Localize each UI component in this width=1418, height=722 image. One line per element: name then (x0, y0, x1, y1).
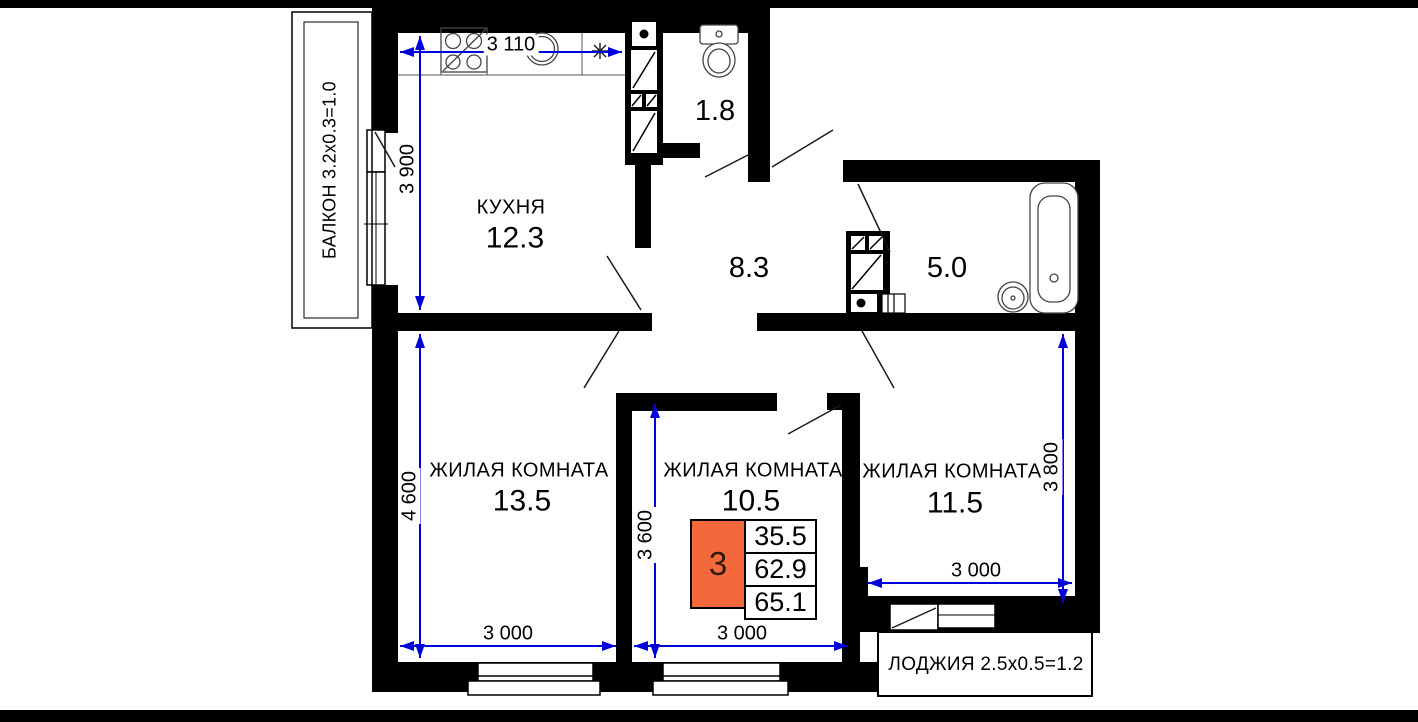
window-living1 (478, 663, 593, 681)
kitchen-label: КУХНЯ (477, 198, 546, 219)
living2-door-swing (788, 405, 841, 434)
apartment-rooms-number: 3 (690, 519, 746, 609)
floor-plan: КУХНЯ 12.3 1.8 8.3 5.0 ЖИЛАЯ КОМНАТА 13.… (0, 0, 1418, 722)
apartment-summary-box: 3 35.5 62.9 65.1 (690, 519, 819, 609)
dim-kitchen-width: 3 110 (484, 35, 539, 56)
living1-door-swing (584, 331, 619, 388)
living3-label: ЖИЛАЯ КОМНАТА (862, 462, 1041, 483)
dim-living1-width: 3 000 (480, 624, 536, 645)
vent-shaft-kitchen-icon (625, 8, 663, 165)
living3-area: 11.5 (927, 487, 983, 519)
living1-label: ЖИЛАЯ КОМНАТА (429, 461, 608, 482)
area-without-balcony-value: 62.9 (744, 552, 817, 587)
wc-area: 1.8 (695, 96, 735, 126)
dim-kitchen-depth: 3 900 (398, 141, 419, 197)
apartment-areas-column: 35.5 62.9 65.1 (744, 519, 817, 609)
dim-living3-depth: 3 800 (1042, 439, 1063, 495)
stove-icon (441, 28, 487, 72)
dim-living2-depth: 3 600 (636, 507, 657, 563)
living2-area: 10.5 (722, 485, 780, 517)
living3-door-swing (862, 331, 894, 388)
window-sill-living2 (653, 681, 788, 695)
entrance-door-swing (772, 130, 833, 167)
balcony-door (367, 130, 385, 172)
total-area-value: 65.1 (744, 585, 817, 620)
window-living2 (663, 663, 780, 681)
dim-living2-width: 3 000 (714, 624, 770, 645)
living1-area: 13.5 (493, 485, 551, 517)
dim-living3-width: 3 000 (948, 561, 1004, 582)
balcony-label: БАЛКОН 3.2x0.3=1.0 (321, 81, 340, 259)
vent-shaft-bathroom-icon (846, 231, 905, 315)
kitchen-door-swing (607, 256, 641, 310)
hallway-area: 8.3 (729, 253, 769, 283)
windows-layer (364, 130, 995, 695)
wc-door-swing (705, 154, 750, 177)
bathroom-area: 5.0 (927, 253, 967, 283)
toilet-icon (700, 25, 738, 77)
dim-living1-depth: 4 600 (400, 468, 421, 524)
loggia-label: ЛОДЖИЯ 2.5x0.5=1.2 (888, 655, 1083, 675)
window-sill-living1 (468, 681, 600, 695)
kitchen-area: 12.3 (486, 222, 544, 254)
washbasin-icon (998, 282, 1028, 312)
bathtub-icon (1030, 183, 1078, 313)
living2-label: ЖИЛАЯ КОМНАТА (663, 461, 842, 482)
living-area-value: 35.5 (744, 519, 817, 554)
loggia-window (938, 604, 995, 628)
